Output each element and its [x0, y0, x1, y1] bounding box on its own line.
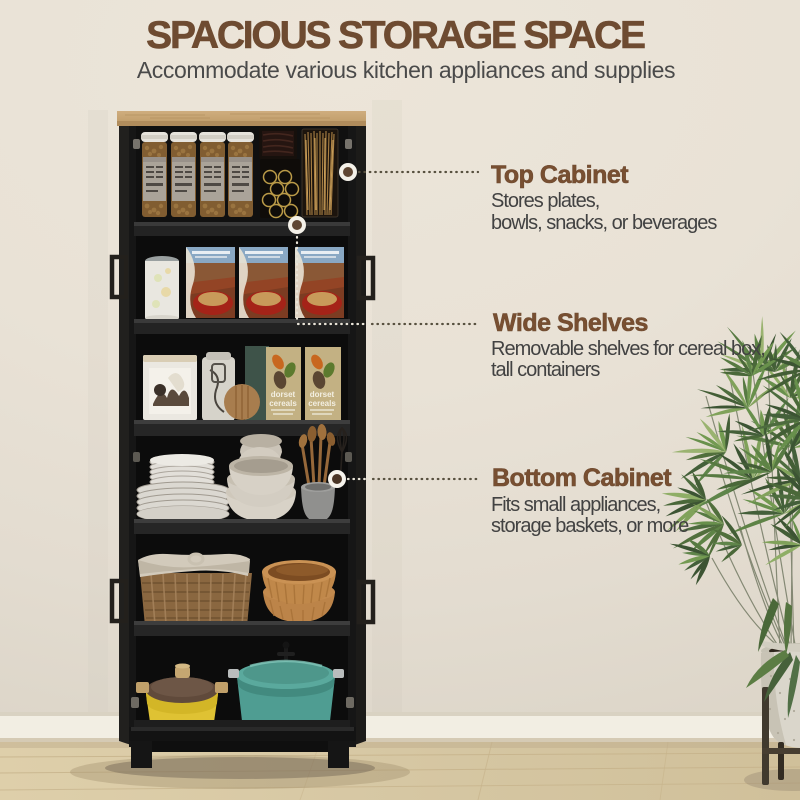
svg-text:dorset: dorset	[310, 390, 335, 399]
svg-text:cereals: cereals	[269, 399, 297, 408]
svg-text:dorset: dorset	[271, 390, 296, 399]
svg-text:cereals: cereals	[308, 399, 336, 408]
